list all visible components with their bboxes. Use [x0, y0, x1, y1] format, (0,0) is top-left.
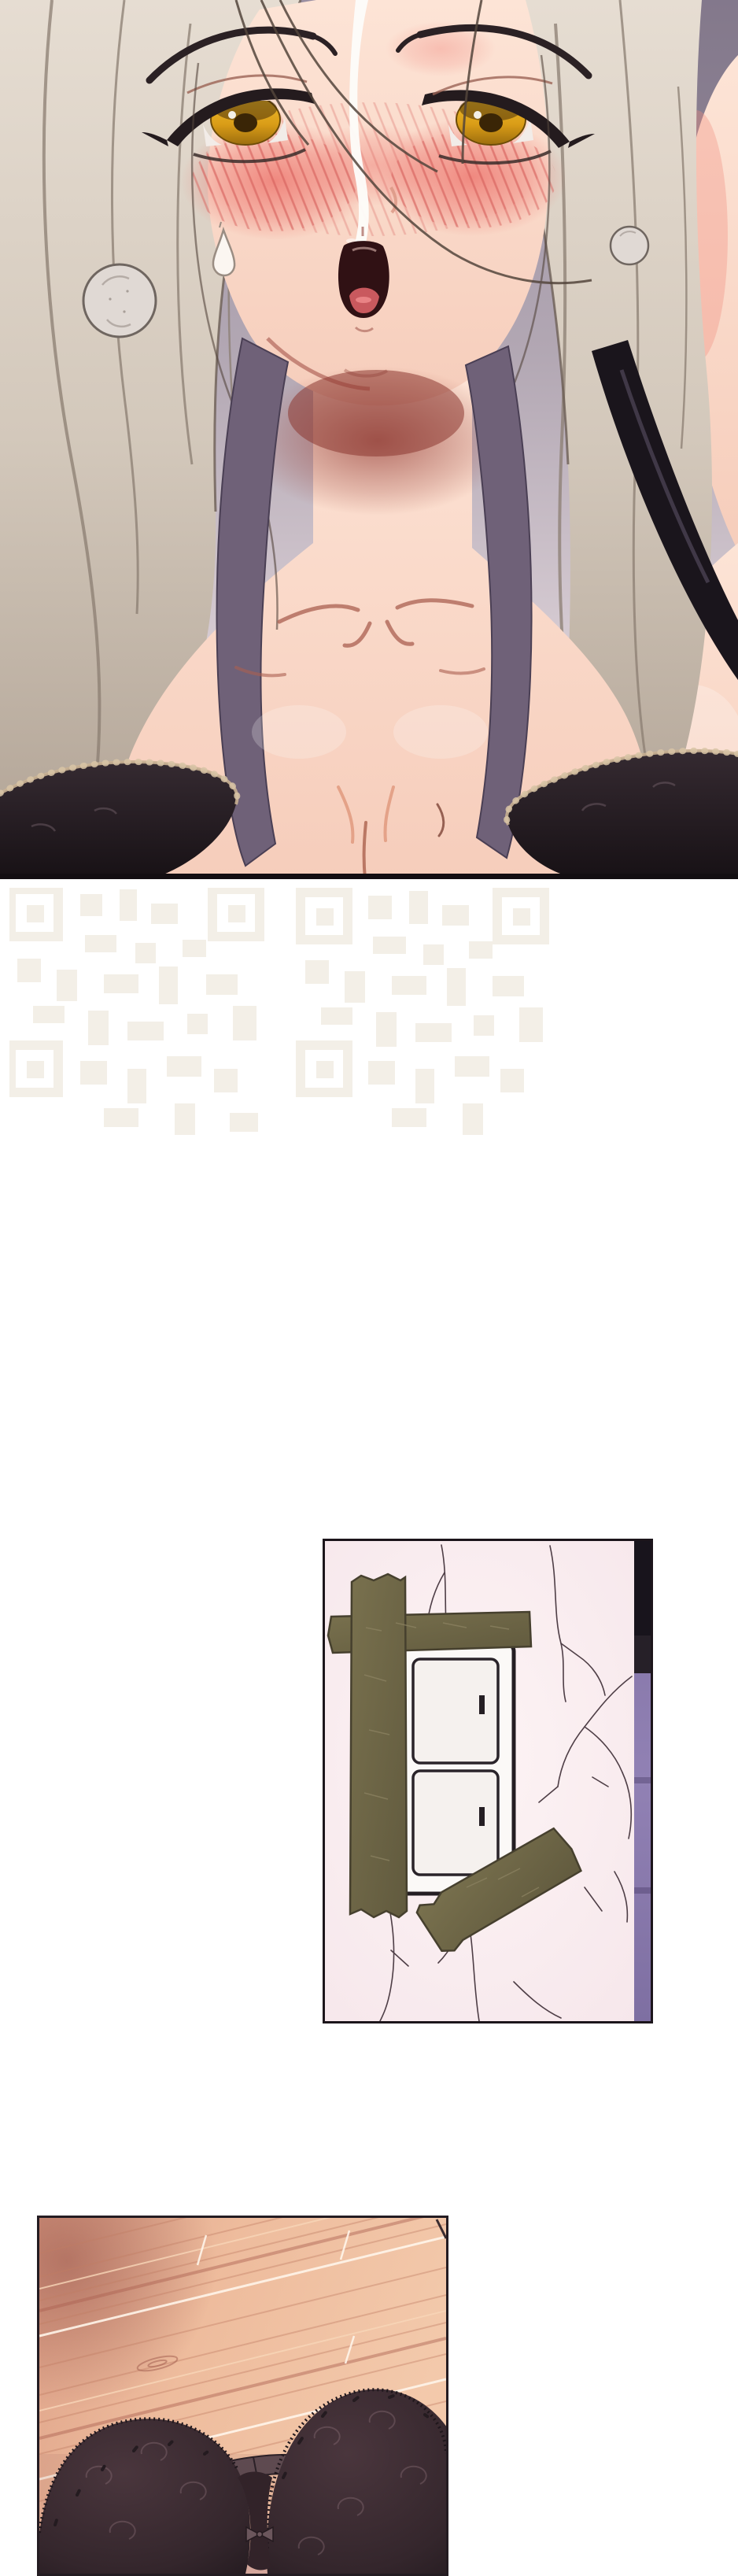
switch-rocker-bottom	[413, 1771, 498, 1875]
switch-rocker-top	[413, 1659, 498, 1763]
webtoon-page	[0, 0, 738, 2569]
tape-vertical	[350, 1574, 407, 1917]
wall-switch-panel	[323, 1539, 653, 2023]
floor-panel	[37, 2216, 448, 2576]
earring-right	[611, 227, 648, 264]
qr-watermark-graphic	[9, 888, 560, 1141]
portrait-panel	[0, 0, 738, 879]
earring-left	[83, 264, 156, 337]
portrait-illustration	[0, 0, 738, 879]
qr-code-right	[301, 891, 544, 1135]
qr-code-left	[11, 889, 260, 1135]
floor-illustration	[39, 2218, 446, 2574]
panel-bottom-edge	[0, 874, 738, 879]
light-switch-plate	[397, 1643, 514, 1894]
wall-illustration	[325, 1541, 651, 2021]
door-edge	[634, 1541, 651, 2021]
qr-watermark	[9, 888, 560, 1141]
